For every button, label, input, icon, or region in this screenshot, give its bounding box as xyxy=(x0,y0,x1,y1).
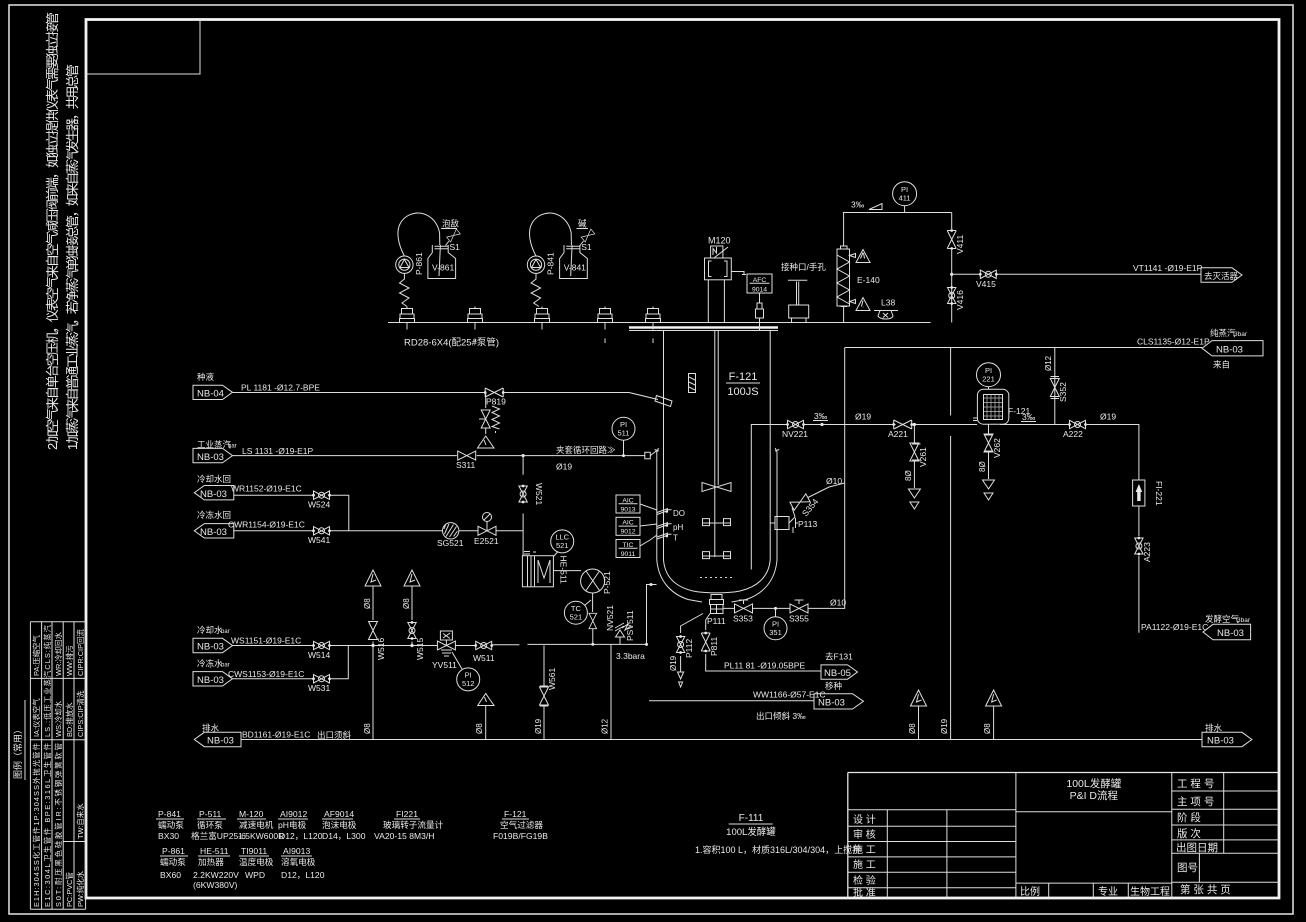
svg-text:3‰: 3‰ xyxy=(1022,412,1036,422)
svg-text:100L发酵罐: 100L发酵罐 xyxy=(1066,777,1121,790)
svg-text:泡沫电极: 泡沫电极 xyxy=(322,819,357,830)
svg-text:AIC: AIC xyxy=(622,497,633,504)
svg-text:W516: W516 xyxy=(376,638,386,660)
svg-text:WS1151-Ø19-E1C: WS1151-Ø19-E1C xyxy=(231,636,301,646)
svg-text:玻璃转子流量计: 玻璃转子流量计 xyxy=(383,819,444,830)
svg-text:Ø19: Ø19 xyxy=(940,718,949,734)
svg-text:排水: 排水 xyxy=(202,723,220,733)
svg-text:CWR1154-Ø19-E1C: CWR1154-Ø19-E1C xyxy=(228,520,305,530)
svg-text:TW:自来水: TW:自来水 xyxy=(76,803,85,839)
svg-text:NB-03: NB-03 xyxy=(207,736,234,747)
svg-text:冷却水回: 冷却水回 xyxy=(197,474,231,484)
svg-text:P112: P112 xyxy=(684,639,694,658)
svg-text:V262: V262 xyxy=(992,438,1002,458)
svg-text:夹套循环回路≫: 夹套循环回路≫ xyxy=(556,445,616,455)
svg-text:LS 1131 -Ø19-E1P: LS 1131 -Ø19-E1P xyxy=(242,446,314,456)
svg-text:Ø10: Ø10 xyxy=(826,476,842,486)
svg-text:种液: 种液 xyxy=(197,372,215,382)
svg-text:M-120: M-120 xyxy=(239,809,264,819)
svg-text:S353: S353 xyxy=(733,614,753,624)
svg-text:2.2KW220V: 2.2KW220V xyxy=(193,870,239,880)
svg-text:主 项 号: 主 项 号 xyxy=(1177,796,1214,808)
svg-text:W531: W531 xyxy=(308,683,330,693)
svg-text:NB-03: NB-03 xyxy=(1216,344,1243,355)
svg-text:bar: bar xyxy=(221,663,230,669)
svg-text:9012: 9012 xyxy=(620,529,635,536)
svg-text:比例: 比例 xyxy=(1020,885,1040,898)
svg-text:F-111: F-111 xyxy=(739,813,764,824)
svg-text:NB-04: NB-04 xyxy=(197,389,224,400)
svg-text:Ø12: Ø12 xyxy=(601,718,610,734)
svg-text:F-121: F-121 xyxy=(504,809,527,819)
svg-text:P-861: P-861 xyxy=(414,252,424,275)
svg-text:512: 512 xyxy=(462,679,475,688)
svg-text:W561: W561 xyxy=(547,668,557,690)
svg-text:来自: 来自 xyxy=(1213,360,1230,370)
svg-text:S0T:耐压黑色硅胶管IR:不锈钢弹簧软管: S0T:耐压黑色硅胶管IR:不锈钢弹簧软管 xyxy=(54,743,63,907)
svg-text:PC:PVC管: PC:PVC管 xyxy=(65,872,74,907)
svg-text:A223: A223 xyxy=(1142,542,1152,562)
svg-text:P811: P811 xyxy=(709,637,719,656)
svg-text:YV511: YV511 xyxy=(432,660,457,670)
svg-text:411: 411 xyxy=(899,194,911,203)
svg-text:E1H:304SS化工管件1P:304SS外抛光管件: E1H:304SS化工管件1P:304SS外抛光管件 xyxy=(32,742,41,907)
svg-text:NB-03: NB-03 xyxy=(197,452,224,463)
svg-text:8Ø: 8Ø xyxy=(978,461,987,472)
svg-text:纯蒸汽: 纯蒸汽 xyxy=(1210,328,1236,338)
svg-text:WR1152-Ø19-E1C: WR1152-Ø19-E1C xyxy=(231,484,302,494)
svg-text:蠕动泵: 蠕动泵 xyxy=(158,820,184,830)
svg-text:P-521: P-521 xyxy=(602,571,612,594)
svg-text:3‰: 3‰ xyxy=(851,200,865,210)
svg-text:P819: P819 xyxy=(486,397,506,407)
svg-text:NB-03: NB-03 xyxy=(197,642,224,653)
svg-text:WW1166-Ø57-E1C: WW1166-Ø57-E1C xyxy=(753,690,826,700)
svg-text:BX30: BX30 xyxy=(158,831,179,841)
svg-text:W541: W541 xyxy=(308,535,330,545)
svg-text:L38: L38 xyxy=(881,298,895,308)
svg-text:E2521: E2521 xyxy=(474,536,499,546)
svg-text:bar: bar xyxy=(228,444,237,450)
svg-text:S1: S1 xyxy=(581,242,592,252)
svg-text:P111: P111 xyxy=(707,616,726,626)
svg-text:P-841: P-841 xyxy=(158,809,181,819)
svg-text:V415: V415 xyxy=(976,279,996,289)
svg-text:Ø19: Ø19 xyxy=(855,412,871,422)
svg-text:V-861: V-861 xyxy=(432,263,454,273)
svg-text:pH: pH xyxy=(673,523,683,532)
svg-text:FI221: FI221 xyxy=(396,809,418,819)
svg-text:NV221: NV221 xyxy=(782,429,808,439)
svg-text:M120: M120 xyxy=(708,236,731,246)
svg-text:9014: 9014 xyxy=(752,286,767,293)
svg-text:pH电极: pH电极 xyxy=(278,819,307,830)
svg-text:蠕动泵: 蠕动泵 xyxy=(160,857,186,867)
svg-text:发酵空气: 发酵空气 xyxy=(1205,614,1240,624)
svg-text:S355: S355 xyxy=(789,614,809,624)
svg-text:T: T xyxy=(673,534,678,543)
svg-text:521: 521 xyxy=(556,541,569,550)
svg-text:Ø10: Ø10 xyxy=(830,598,846,608)
svg-text:V261: V261 xyxy=(918,447,928,467)
svg-text:V411: V411 xyxy=(955,235,965,254)
svg-text:3.3bara: 3.3bara xyxy=(616,651,645,661)
svg-text:W524: W524 xyxy=(308,500,330,510)
svg-text:3bar: 3bar xyxy=(1234,331,1248,338)
svg-text:CLS1135-Ø12-E1P: CLS1135-Ø12-E1P xyxy=(1137,337,1210,347)
svg-text:Ø8: Ø8 xyxy=(363,598,372,609)
svg-text:3bar: 3bar xyxy=(1237,617,1251,624)
svg-text:NB-03: NB-03 xyxy=(1207,736,1234,747)
svg-text:去灭活器: 去灭活器 xyxy=(1204,271,1239,281)
svg-text:版 次: 版 次 xyxy=(1177,827,1201,840)
svg-text:Ø8: Ø8 xyxy=(475,723,484,734)
svg-text:检 验: 检 验 xyxy=(853,874,876,887)
svg-text:温度电极: 温度电极 xyxy=(239,856,274,867)
svg-text:521: 521 xyxy=(570,613,583,622)
svg-text:碱: 碱 xyxy=(578,219,587,229)
svg-text:Ø19: Ø19 xyxy=(556,462,572,472)
svg-text:351: 351 xyxy=(769,628,782,637)
svg-text:Ø19: Ø19 xyxy=(534,718,543,734)
svg-text:P-861: P-861 xyxy=(162,846,185,856)
svg-text:IA:仪表空气: IA:仪表空气 xyxy=(32,698,41,737)
svg-text:Ø8: Ø8 xyxy=(983,723,992,734)
svg-text:CIPR:CIP回流: CIPR:CIP回流 xyxy=(76,629,85,676)
svg-text:PW:纯化水: PW:纯化水 xyxy=(76,870,85,907)
svg-text:移种: 移种 xyxy=(825,681,842,691)
svg-text:PA:压缩空气: PA:压缩空气 xyxy=(32,634,41,676)
svg-text:WR:冷却回水: WR:冷却回水 xyxy=(54,631,63,676)
svg-text:WPD: WPD xyxy=(245,870,265,880)
svg-text:HE-511: HE-511 xyxy=(200,846,229,856)
svg-text:接种口/手孔: 接种口/手孔 xyxy=(781,262,826,272)
svg-text:D14，L300: D14，L300 xyxy=(322,831,366,841)
svg-text:WS:冷却水: WS:冷却水 xyxy=(54,700,63,737)
svg-text:NB-03: NB-03 xyxy=(197,675,224,686)
svg-text:Ø19: Ø19 xyxy=(1100,412,1116,422)
svg-text:WW:排污: WW:排污 xyxy=(65,645,74,676)
svg-text:RD28-6X4(配25#泵管): RD28-6X4(配25#泵管) xyxy=(404,337,499,349)
svg-text:PL 1181 -Ø12.7-BPE: PL 1181 -Ø12.7-BPE xyxy=(241,383,320,393)
svg-text:出口须斜: 出口须斜 xyxy=(317,730,352,740)
svg-text:V416: V416 xyxy=(955,290,965,310)
svg-text:溶氧电极: 溶氧电极 xyxy=(281,856,316,867)
svg-text:Ø8: Ø8 xyxy=(363,723,372,734)
svg-text:AI9012: AI9012 xyxy=(280,809,307,819)
svg-text:设 计: 设 计 xyxy=(853,813,876,826)
svg-text:循环泵: 循环泵 xyxy=(197,819,223,830)
svg-text:P-511: P-511 xyxy=(199,809,222,819)
svg-text:审 核: 审 核 xyxy=(853,828,876,841)
svg-text:V-841: V-841 xyxy=(564,263,586,273)
svg-text:1.容积100 L，材质316L/304/304，上搅拌: 1.容积100 L，材质316L/304/304，上搅拌 xyxy=(695,844,861,855)
svg-text:9011: 9011 xyxy=(621,551,636,558)
svg-text:Ø12: Ø12 xyxy=(1044,355,1053,371)
svg-text:NB-03: NB-03 xyxy=(200,527,227,538)
svg-text:100L发酵罐: 100L发酵罐 xyxy=(726,826,776,838)
svg-text:生物工程: 生物工程 xyxy=(1130,885,1170,898)
svg-text:FI-221: FI-221 xyxy=(1154,481,1164,506)
svg-text:W514: W514 xyxy=(308,650,330,660)
svg-text:SG521: SG521 xyxy=(437,538,464,548)
svg-text:HE-511: HE-511 xyxy=(559,556,569,584)
svg-text:冷却水: 冷却水 xyxy=(197,625,223,635)
svg-text:减速电机: 减速电机 xyxy=(239,819,274,830)
svg-text:D12，L120: D12，L120 xyxy=(281,870,325,880)
svg-text:图例（常用）: 图例（常用） xyxy=(12,725,23,779)
svg-text:CIPS:CIP清洗: CIPS:CIP清洗 xyxy=(76,690,85,737)
svg-text:W511: W511 xyxy=(473,653,495,663)
svg-text:bar: bar xyxy=(221,629,230,635)
svg-text:S352: S352 xyxy=(1058,382,1068,402)
svg-text:S311: S311 xyxy=(456,460,475,470)
svg-text:专业: 专业 xyxy=(1098,885,1118,898)
svg-text:100JS: 100JS xyxy=(727,386,758,398)
svg-text:TI9011: TI9011 xyxy=(241,846,267,856)
svg-text:第 张 共 页: 第 张 共 页 xyxy=(1180,883,1231,896)
svg-text:NB-03: NB-03 xyxy=(818,698,845,709)
svg-text:W521: W521 xyxy=(534,483,544,505)
svg-text:F019B/FG19B: F019B/FG19B xyxy=(493,831,548,841)
svg-text:冷冻水: 冷冻水 xyxy=(197,659,223,669)
svg-text:P113: P113 xyxy=(798,519,817,529)
svg-text:冷冻水回: 冷冻水回 xyxy=(197,510,231,520)
svg-text:加热器: 加热器 xyxy=(198,856,224,867)
svg-text:W515: W515 xyxy=(415,638,425,660)
svg-text:NB-03: NB-03 xyxy=(1217,628,1244,639)
svg-text:511: 511 xyxy=(618,429,630,438)
svg-text:排水: 排水 xyxy=(1205,723,1223,733)
svg-text:8Ø: 8Ø xyxy=(904,470,913,481)
svg-text:PA1122-Ø19-E1C: PA1122-Ø19-E1C xyxy=(1141,622,1208,632)
svg-text:BX60: BX60 xyxy=(160,870,181,880)
svg-text:出口倾斜 3‰: 出口倾斜 3‰ xyxy=(756,711,806,721)
svg-text:PL11 81 -Ø19.05BPE: PL11 81 -Ø19.05BPE xyxy=(724,661,805,671)
svg-text:BD:排放水: BD:排放水 xyxy=(65,702,74,737)
svg-text:E1C:304L卫生管件 BPE:316L卫生管件: E1C:304L卫生管件 BPE:316L卫生管件 xyxy=(43,742,52,907)
svg-text:阶 段: 阶 段 xyxy=(1177,811,1201,824)
svg-text:施 工: 施 工 xyxy=(853,858,876,871)
svg-text:2.加空气来自单台空压机，仪表空气来自空气减压阀前端，如独立: 2.加空气来自单台空压机，仪表空气来自空气减压阀前端，如独立提供仪表气需要独立接… xyxy=(45,12,60,450)
svg-text:9013: 9013 xyxy=(620,506,635,513)
svg-text:PSV511: PSV511 xyxy=(625,610,635,641)
svg-text:P-841: P-841 xyxy=(546,252,556,275)
svg-text:AF9014: AF9014 xyxy=(324,809,354,819)
svg-text:工 程 号: 工 程 号 xyxy=(1177,778,1214,790)
svg-text:CWS1153-Ø19-E1C: CWS1153-Ø19-E1C xyxy=(228,669,304,679)
svg-text:空气过滤器: 空气过滤器 xyxy=(500,819,543,830)
svg-text:1.加蒸汽来自普通工业蒸汽，若净蒸汽单独接总管，如来自蒸汽发: 1.加蒸汽来自普通工业蒸汽，若净蒸汽单独接总管，如来自蒸汽发生器，共用总管 xyxy=(65,64,80,450)
svg-text:BD1161-Ø19-E1C: BD1161-Ø19-E1C xyxy=(242,730,310,740)
svg-text:Ø19: Ø19 xyxy=(669,655,678,671)
svg-text:NB-05: NB-05 xyxy=(824,668,851,679)
svg-text:A222: A222 xyxy=(1063,429,1083,439)
svg-text:TIC: TIC xyxy=(623,542,634,549)
svg-text:A221: A221 xyxy=(888,429,908,439)
svg-text:VA20-15 8M3/H: VA20-15 8M3/H xyxy=(374,831,435,841)
svg-text:AIC: AIC xyxy=(622,520,633,527)
svg-text:F-121: F-121 xyxy=(729,371,758,383)
svg-text:VT1141 -Ø19-E1P: VT1141 -Ø19-E1P xyxy=(1133,263,1203,273)
svg-text:3‰: 3‰ xyxy=(814,411,828,421)
svg-text:DO: DO xyxy=(673,509,685,518)
svg-text:NB-03: NB-03 xyxy=(200,489,227,500)
svg-text:批 准: 批 准 xyxy=(853,886,876,899)
svg-text:Ø8: Ø8 xyxy=(908,723,917,734)
svg-text:D12，L120: D12，L120 xyxy=(279,831,323,841)
svg-text:221: 221 xyxy=(982,375,995,384)
svg-text:(6KW380V): (6KW380V) xyxy=(193,880,238,890)
svg-text:图号: 图号 xyxy=(1177,862,1198,874)
svg-text:E-140: E-140 xyxy=(857,275,880,285)
svg-text:AI9013: AI9013 xyxy=(283,846,310,856)
svg-text:NV521: NV521 xyxy=(605,605,615,631)
svg-text:出图日期: 出图日期 xyxy=(1176,841,1218,854)
svg-text:去F131: 去F131 xyxy=(825,652,853,662)
svg-text:Ø8: Ø8 xyxy=(402,598,411,609)
svg-text:1.5KW600R: 1.5KW600R xyxy=(238,831,284,841)
svg-text:泡敌: 泡敌 xyxy=(442,219,460,229)
svg-text:LS.:低压工业蒸汽CLS:纯蒸汽: LS.:低压工业蒸汽CLS:纯蒸汽 xyxy=(43,624,52,737)
svg-text:P&I D流程: P&I D流程 xyxy=(1070,789,1119,802)
svg-text:AFC: AFC xyxy=(753,277,767,284)
svg-text:S1: S1 xyxy=(450,242,461,252)
